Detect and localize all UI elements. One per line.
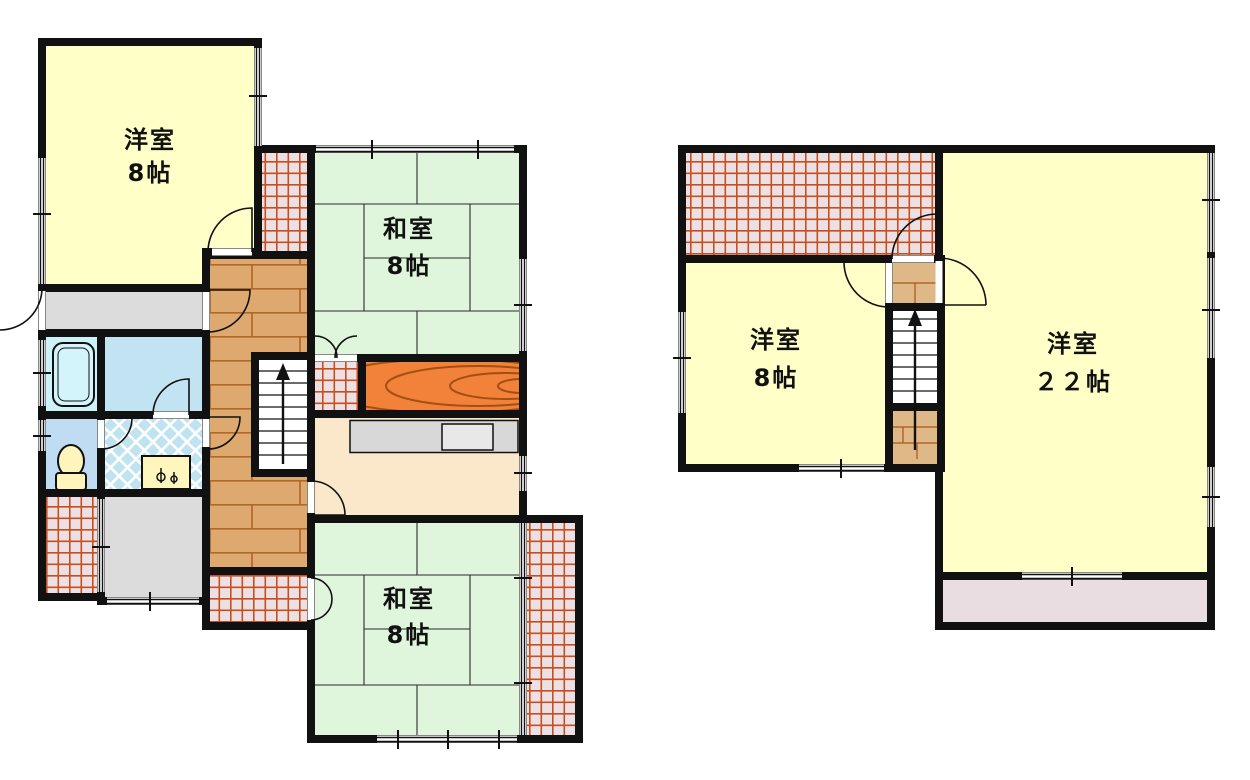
- floor-plan-drawing: 洋室 8帖 和室 8帖 和室 8帖: [0, 0, 1250, 780]
- entrance-porch-tile: [42, 493, 101, 597]
- room-size: ２２帖: [1034, 368, 1112, 396]
- room-label: 和室: [383, 585, 435, 613]
- veranda-south-strip: [206, 571, 311, 626]
- changing-room: [101, 333, 206, 415]
- floor2-plan: 洋室 8帖 洋室 ２２帖: [673, 149, 1220, 626]
- toilet-icon: [56, 445, 86, 490]
- kitchen-sink: [442, 424, 493, 450]
- floor-plan-page: 洋室 8帖 和室 8帖 和室 8帖: [0, 0, 1250, 780]
- bathtub-icon: [53, 343, 94, 406]
- front-side-door-arc: [0, 288, 42, 330]
- vanity-icon: [142, 456, 190, 489]
- floor1-plan: 洋室 8帖 和室 8帖 和室 8帖: [0, 42, 580, 749]
- room-label: 洋室: [1047, 330, 1099, 358]
- room-size: 8帖: [387, 621, 432, 649]
- entrance-hall: [101, 493, 206, 601]
- storage-grid: [311, 358, 362, 414]
- room-western-2f-large: [939, 149, 1211, 576]
- room-size: 8帖: [754, 364, 799, 392]
- room-label: 和室: [383, 215, 435, 243]
- balcony-north: [682, 149, 939, 259]
- room-size: 8帖: [128, 159, 173, 187]
- side-porch: [42, 288, 206, 333]
- balcony-south: [939, 576, 1211, 626]
- veranda-east: [523, 519, 579, 739]
- room-size: 8帖: [387, 252, 432, 280]
- room-label: 洋室: [124, 126, 176, 154]
- room-label: 洋室: [750, 326, 802, 354]
- closet-grid-1f: [258, 149, 311, 258]
